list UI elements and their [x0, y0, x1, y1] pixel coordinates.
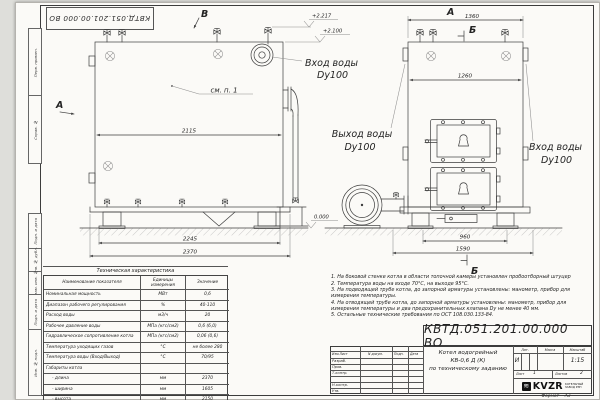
- elev-2100-text: +2.100: [323, 29, 343, 35]
- inlet-left-line2: Dy100: [317, 70, 348, 81]
- tb-row-line: [330, 364, 423, 365]
- table-cell: [141, 364, 186, 375]
- table-cell: мм: [141, 385, 186, 396]
- dim-2245-text: 2245: [183, 237, 198, 243]
- tb-divider: [529, 353, 530, 370]
- elevation-mark-2100: +2.100: [285, 29, 350, 43]
- tb-row-line: [513, 353, 592, 354]
- dim-1590-text: 1590: [456, 247, 471, 253]
- rev-col-ndocum: N докум.: [368, 352, 383, 356]
- water-inlet-label-left: Вход воды Dy100: [272, 57, 359, 81]
- kvzr-brand-sub: КОТЕЛЬНЫЙ ЗАВОД РЭП: [565, 383, 583, 389]
- kvzr-sub-line2: ЗАВОД РЭП: [565, 386, 583, 389]
- table-row: Расход воды: [44, 311, 141, 322]
- scale-value: 1:15: [563, 357, 592, 364]
- note-4: 4. На отводящей трубе котла, до запорной…: [331, 300, 593, 312]
- doc-title-line1: Котел водогрейный: [423, 350, 513, 356]
- inlet-flange-port: [251, 44, 273, 66]
- table-row: - длина: [44, 374, 141, 385]
- view-label-a-arrow: А: [55, 100, 74, 114]
- ground-line: [80, 228, 562, 235]
- water-inlet-label-right: Вход воды Dy100: [526, 64, 583, 166]
- table-cell: 20: [186, 311, 229, 322]
- view-b-text: В: [201, 9, 208, 20]
- drawing-page: Перв. примен. Справ. № Подп. и дата Инв.…: [0, 0, 600, 400]
- side-view-top-valves: [104, 28, 271, 44]
- table-cell: МПа (кгс/см2): [141, 322, 186, 333]
- section-mark-b-top: Б: [458, 25, 476, 41]
- dim-1260-text: 1260: [458, 74, 473, 80]
- table-cell: [186, 364, 229, 375]
- table-row: Рабочее давление воды: [44, 322, 141, 333]
- format-value: А3: [565, 394, 571, 399]
- view-a-text: А: [55, 100, 63, 111]
- inlet-right-line2: Dy100: [541, 155, 572, 166]
- row-nkontr: Н.контр.: [332, 383, 348, 387]
- lit-label: Лит.: [513, 348, 537, 352]
- view-a-top-text: А: [446, 7, 454, 18]
- table-cell: мм: [141, 395, 186, 400]
- table-cell: м3/ч: [141, 311, 186, 322]
- col-header-unit: Единицы измерения: [141, 276, 186, 290]
- tb-divider: [552, 370, 553, 378]
- tech-characteristics-table: Техническая характеристика Наименование …: [43, 266, 228, 400]
- tb-divider: [521, 353, 522, 370]
- mass-label: Масса: [537, 348, 563, 352]
- elev-zero-text: 0.000: [314, 215, 330, 221]
- outlet-line2: Dy100: [344, 142, 375, 153]
- side-view-outlet-pipe: [274, 87, 308, 226]
- table-cell: 1605: [186, 385, 229, 396]
- sheet-value: 1: [533, 371, 536, 376]
- furnace-door-lower: [425, 168, 500, 211]
- rev-col-izm-list: Изм.Лист: [332, 352, 348, 356]
- table-row: - ширина: [44, 385, 141, 396]
- table-cell: 2370: [186, 374, 229, 385]
- row-utv: Утв.: [332, 389, 340, 393]
- table-row: Гидравлическое сопротивление котла: [44, 332, 141, 343]
- table-cell: МВт: [141, 290, 186, 301]
- table-row: Габариты котла: [44, 364, 141, 375]
- outlet-line1: Выход воды: [332, 129, 393, 140]
- table-cell: мм: [141, 374, 186, 385]
- sheet-label: Лист: [516, 372, 524, 376]
- table-row: Номинальная мощность: [44, 290, 141, 301]
- note-5: 5. Остальные технические требования по О…: [331, 312, 593, 318]
- table-cell: 0,6: [186, 290, 229, 301]
- table-row: Температура воды (Вход/Выход): [44, 353, 141, 364]
- lit-value: И: [513, 357, 521, 364]
- boiler-side-view: [89, 28, 308, 229]
- col-header-name: Наименование показателя: [44, 276, 141, 290]
- table-cell: 70/95: [186, 353, 229, 364]
- row-prov: Пров.: [332, 365, 342, 369]
- inlet-left-line1: Вход воды: [305, 58, 359, 69]
- rev-col-data: Дата: [410, 352, 418, 356]
- side-view-base: [90, 207, 290, 229]
- table-cell: не более 280: [186, 343, 229, 354]
- table-cell: 0,6 (6,0): [186, 322, 229, 333]
- col-header-value: Значение: [186, 276, 229, 290]
- note-3: 3. На подводящей трубе котла, до запорно…: [331, 287, 593, 299]
- table-cell: 0,06 (0,6): [186, 332, 229, 343]
- tb-row-line: [330, 388, 423, 389]
- elev-2217-text: +2.217: [312, 14, 332, 20]
- dim-1360-text: 1360: [465, 14, 480, 20]
- rev-col-podp: Подп.: [394, 352, 404, 356]
- dimension-1260: 1260: [410, 74, 521, 81]
- table-row: - высота: [44, 395, 141, 400]
- kvzr-logo-icon: ≋: [522, 382, 531, 391]
- sheets-value: 2: [580, 371, 583, 376]
- dim-2370-text: 2370: [183, 250, 198, 256]
- elevation-mark-2217: +2.217: [272, 14, 338, 28]
- scale-label: Масштаб: [563, 348, 592, 352]
- dim-960-text: 960: [460, 235, 471, 241]
- doc-title-line3: по техническому заданию: [423, 366, 513, 372]
- furnace-door-upper: [425, 120, 500, 163]
- format-label: Формат: [541, 394, 559, 399]
- note-2: 2. Температура воды на входе 70°С, на вы…: [331, 281, 593, 287]
- dim-2115-text: 2115: [182, 129, 197, 135]
- row-razrab: Разраб.: [332, 359, 346, 363]
- title-block: КВТД.051.201.00.000 ВО Изм.Лист N докум.…: [330, 325, 592, 394]
- view-label-b-arrow: В: [194, 9, 208, 28]
- side-view-drain-valves: [104, 199, 227, 207]
- row-tkontr: Т.контр.: [332, 371, 348, 375]
- elevation-mark-zero: 0.000: [306, 215, 338, 229]
- doc-title-line2: КВ-0,6 Д (К): [423, 358, 513, 364]
- table-row: Диапазон рабочего регулирования: [44, 301, 141, 312]
- sheets-label: Листов: [555, 372, 567, 376]
- section-b-top-text: Б: [469, 25, 476, 36]
- blower-fan: [342, 185, 408, 228]
- see-item-note: см. п. 1: [171, 85, 253, 94]
- table-cell: °С: [141, 343, 186, 354]
- table-cell: МПа (кгс/см2): [141, 332, 186, 343]
- kvzr-brand-text: KVZR: [533, 381, 563, 392]
- tech-table-grid: Наименование показателя Единицы измерени…: [43, 275, 228, 400]
- format-note: Формат А3: [520, 394, 592, 399]
- table-cell: 40-110: [186, 301, 229, 312]
- technical-notes: 1. На боковой стенке котла в области топ…: [331, 274, 593, 319]
- doc-number-cell: КВТД.051.201.00.000 ВО: [423, 325, 592, 346]
- table-cell: °С: [141, 353, 186, 364]
- table-cell: %: [141, 301, 186, 312]
- kvzr-logo: ≋ KVZR КОТЕЛЬНЫЙ ЗАВОД РЭП: [515, 379, 590, 393]
- note-1: 1. На боковой стенке котла в области топ…: [331, 274, 593, 280]
- table-row: Температура уходящих газов: [44, 343, 141, 354]
- table-cell: 2150: [186, 395, 229, 400]
- dimension-2115: 2115: [97, 129, 281, 136]
- tb-row-line: [330, 376, 423, 377]
- tech-table-title: Техническая характеристика: [43, 266, 228, 275]
- see-item-text: см. п. 1: [210, 87, 237, 95]
- inlet-right-line1: Вход воды: [529, 142, 583, 153]
